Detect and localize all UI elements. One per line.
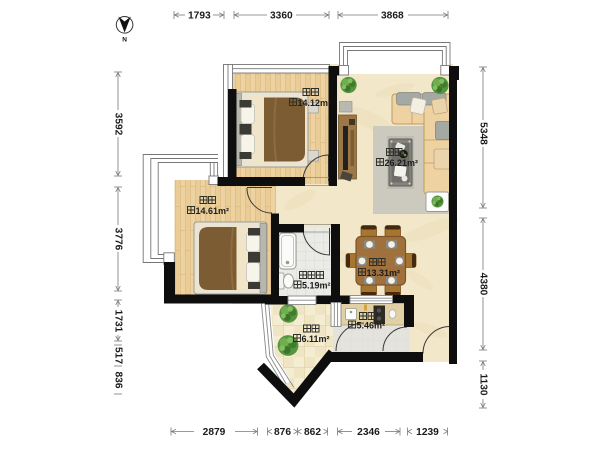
svg-text:3776: 3776 (112, 228, 123, 251)
svg-text:1793: 1793 (188, 11, 211, 22)
svg-text:3592: 3592 (112, 113, 123, 136)
svg-text:1239: 1239 (416, 427, 439, 438)
svg-text:5.46m²: 5.46m² (357, 321, 386, 331)
svg-text:2346: 2346 (357, 427, 380, 438)
svg-text:876: 876 (274, 427, 291, 438)
svg-text:5348: 5348 (477, 122, 488, 145)
svg-text:13.31m²: 13.31m² (367, 268, 401, 278)
svg-text:26.21m²: 26.21m² (385, 158, 419, 168)
svg-text:5.19m²: 5.19m² (302, 281, 331, 291)
svg-text:3868: 3868 (381, 11, 404, 22)
svg-text:4380: 4380 (477, 273, 488, 296)
svg-text:6.11m²: 6.11m² (302, 334, 330, 344)
svg-text:836: 836 (112, 372, 123, 389)
svg-text:2879: 2879 (203, 427, 226, 438)
svg-text:14.61m²: 14.61m² (196, 206, 230, 216)
svg-text:517: 517 (112, 347, 123, 364)
svg-text:1130: 1130 (477, 373, 488, 395)
svg-text:1731: 1731 (112, 310, 123, 333)
svg-text:3360: 3360 (270, 11, 293, 22)
svg-text:N: N (122, 37, 127, 44)
svg-text:14.12m²: 14.12m² (298, 98, 332, 108)
svg-text:862: 862 (304, 427, 321, 438)
